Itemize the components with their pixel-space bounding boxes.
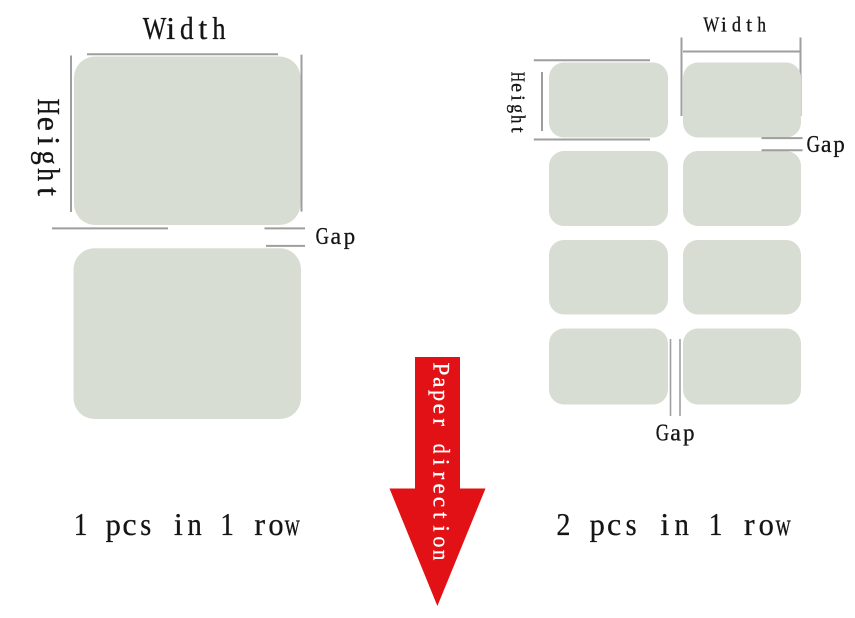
svg-text:r: r	[254, 506, 265, 542]
svg-text:G: G	[807, 131, 820, 158]
svg-text:s: s	[140, 507, 151, 543]
svg-text:s: s	[626, 506, 637, 542]
svg-text:r: r	[744, 506, 755, 542]
svg-text:p: p	[683, 420, 694, 447]
svg-text:a: a	[821, 132, 832, 158]
svg-text:o: o	[759, 506, 774, 542]
svg-text:p: p	[344, 224, 355, 251]
svg-text:i: i	[174, 506, 183, 542]
svg-text:H: H	[507, 72, 529, 82]
svg-text:2: 2	[556, 506, 570, 542]
svg-text:p: p	[106, 506, 121, 542]
svg-text:h: h	[507, 115, 529, 123]
svg-text:h: h	[757, 13, 766, 37]
svg-text:i: i	[428, 459, 454, 466]
svg-text:g: g	[506, 104, 528, 113]
svg-text:p: p	[590, 506, 605, 542]
svg-text:e: e	[31, 117, 67, 131]
svg-text:i: i	[428, 525, 454, 532]
svg-text:e: e	[428, 404, 454, 414]
svg-text:a: a	[330, 224, 341, 250]
svg-text:w: w	[285, 507, 301, 542]
svg-text:g: g	[31, 151, 67, 165]
svg-text:G: G	[316, 223, 329, 250]
svg-text:1: 1	[220, 508, 233, 543]
svg-text:1: 1	[709, 508, 722, 543]
svg-text:p: p	[833, 131, 844, 158]
svg-text:w: w	[776, 507, 792, 542]
svg-text:d: d	[180, 12, 194, 46]
svg-text:G: G	[656, 419, 669, 446]
svg-text:a: a	[428, 377, 454, 388]
svg-text:p: p	[428, 390, 454, 401]
svg-text:h: h	[212, 12, 225, 47]
svg-text:n: n	[428, 550, 454, 560]
svg-text:W: W	[143, 11, 167, 47]
svg-text:i: i	[660, 506, 669, 542]
svg-text:e: e	[428, 483, 454, 493]
svg-text:t: t	[31, 187, 67, 196]
svg-text:a: a	[670, 421, 681, 447]
svg-text:e: e	[506, 83, 528, 92]
svg-text:o: o	[428, 536, 454, 547]
svg-text:t: t	[198, 10, 207, 46]
svg-text:i: i	[506, 95, 528, 101]
svg-text:d: d	[428, 444, 454, 454]
svg-text:r: r	[428, 418, 454, 426]
svg-text:W: W	[703, 14, 720, 37]
svg-text:i: i	[31, 136, 67, 145]
svg-text:t: t	[746, 13, 752, 37]
svg-text:n: n	[675, 507, 689, 543]
svg-text:d: d	[732, 13, 741, 37]
svg-text:c: c	[122, 506, 136, 542]
svg-text:H: H	[31, 99, 67, 115]
svg-text:r: r	[428, 471, 454, 479]
svg-text:o: o	[268, 506, 283, 542]
svg-text:1: 1	[74, 508, 87, 543]
svg-text:t: t	[428, 512, 454, 519]
svg-text:i: i	[166, 10, 175, 46]
svg-text:c: c	[607, 506, 621, 542]
svg-text:P: P	[428, 362, 454, 375]
svg-text:n: n	[187, 507, 201, 543]
svg-text:t: t	[506, 127, 528, 133]
svg-text:c: c	[428, 497, 454, 507]
svg-text:i: i	[721, 13, 727, 37]
svg-text:h: h	[30, 168, 65, 181]
